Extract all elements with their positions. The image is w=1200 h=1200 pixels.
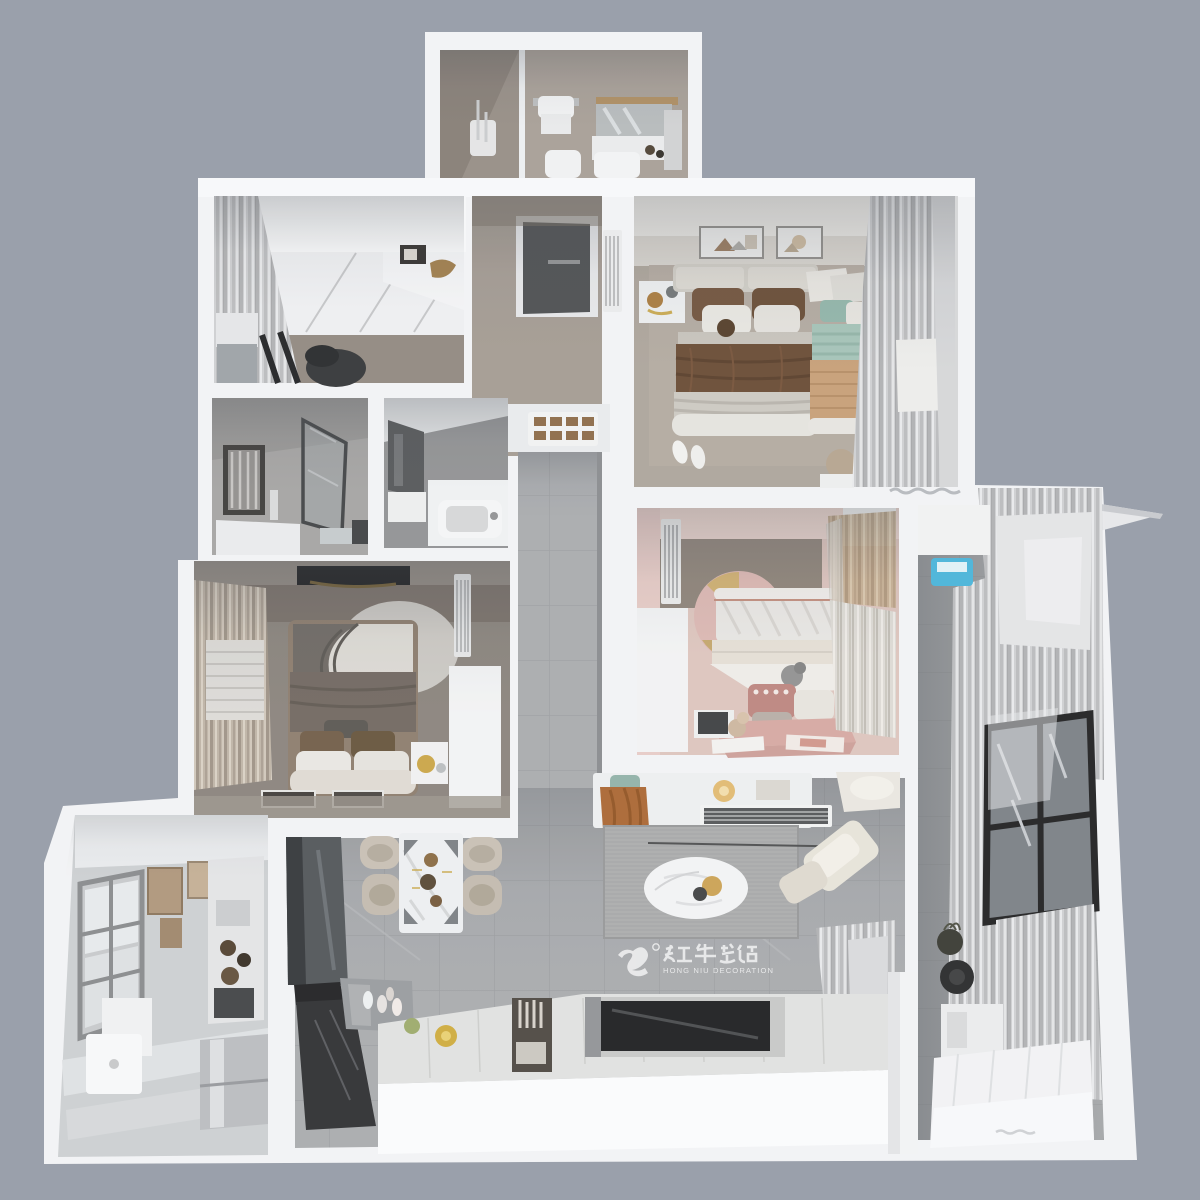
svg-text:HONG NIU DECORATION: HONG NIU DECORATION — [663, 966, 774, 975]
